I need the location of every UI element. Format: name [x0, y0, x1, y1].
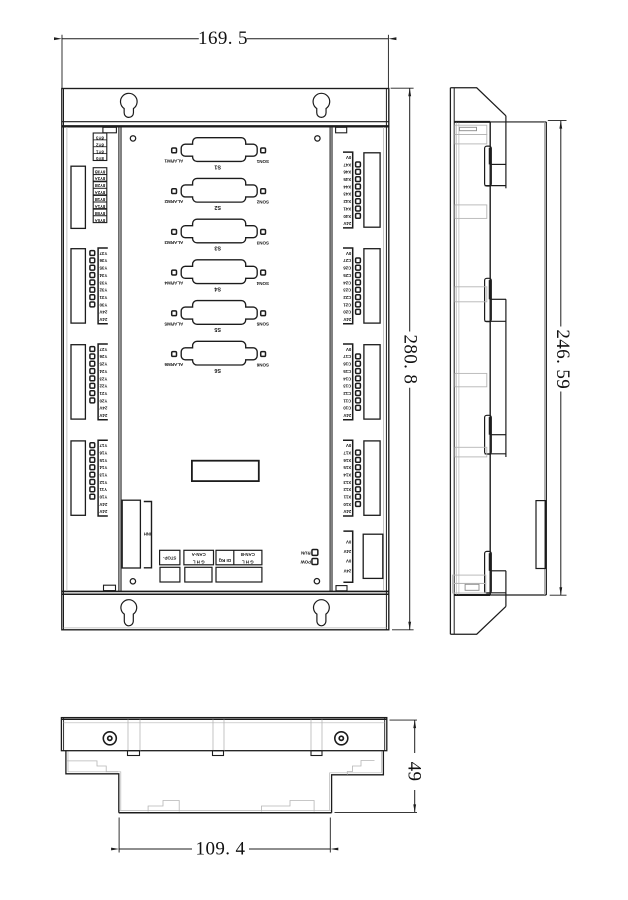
svg-text:ALARM6: ALARM6 — [164, 362, 183, 367]
svg-text:CAN-A: CAN-A — [191, 552, 206, 557]
svg-text:Y23: Y23 — [99, 376, 107, 381]
svg-text:C16: C16 — [343, 362, 352, 367]
svg-text:Y27: Y27 — [99, 347, 107, 352]
svg-text:Y11: Y11 — [99, 487, 107, 492]
svg-text:C22: C22 — [343, 295, 352, 300]
svg-text:X44: X44 — [343, 184, 351, 189]
svg-text:C13: C13 — [343, 384, 352, 389]
svg-text:8Y3A: 8Y3A — [95, 176, 105, 181]
svg-text:Y33: Y33 — [99, 280, 107, 285]
svg-text:X11: X11 — [343, 494, 351, 499]
svg-text:X10: X10 — [343, 502, 351, 507]
svg-text:Y26: Y26 — [99, 354, 107, 359]
svg-text:24V: 24V — [99, 502, 107, 507]
svg-text:X13: X13 — [343, 480, 351, 485]
svg-text:8Y0: 8Y0 — [96, 156, 104, 161]
svg-text:8Y1: 8Y1 — [96, 149, 104, 154]
svg-text:24V: 24V — [343, 509, 351, 514]
svg-text:24V: 24V — [99, 310, 107, 315]
svg-text:8Y3: 8Y3 — [96, 136, 104, 141]
svg-text:CAN-B: CAN-B — [241, 552, 255, 557]
svg-text:8Y0B: 8Y0B — [95, 211, 105, 216]
svg-text:DI RQ: DI RQ — [218, 558, 231, 563]
svg-text:ALARM2: ALARM2 — [164, 199, 183, 204]
svg-text:Y20: Y20 — [99, 398, 107, 403]
svg-text:Y30: Y30 — [99, 302, 107, 307]
svg-text:Y31: Y31 — [99, 295, 107, 300]
svg-text:SON2: SON2 — [256, 200, 269, 205]
svg-text:X40: X40 — [343, 214, 351, 219]
svg-text:C15: C15 — [343, 369, 352, 374]
svg-text:X14: X14 — [343, 472, 351, 477]
svg-text:C21: C21 — [343, 302, 352, 307]
svg-text:49: 49 — [403, 762, 424, 782]
svg-text:S1: S1 — [214, 163, 221, 169]
svg-text:8Y3B: 8Y3B — [95, 169, 105, 174]
svg-text:C24: C24 — [343, 280, 352, 285]
svg-text:C14: C14 — [343, 376, 352, 381]
svg-text:8Y2B: 8Y2B — [95, 183, 105, 188]
svg-text:8Y0A: 8Y0A — [95, 218, 105, 223]
svg-text:C12: C12 — [343, 391, 352, 396]
svg-text:C17: C17 — [343, 354, 352, 359]
svg-text:24V: 24V — [344, 568, 352, 573]
svg-text:0V: 0V — [346, 559, 351, 564]
svg-text:X12: X12 — [343, 487, 351, 492]
svg-text:POW: POW — [300, 559, 311, 564]
svg-text:169. 5: 169. 5 — [198, 28, 248, 49]
svg-text:X46: X46 — [343, 170, 351, 175]
svg-text:ALARM1: ALARM1 — [164, 158, 183, 163]
svg-text:G H L: G H L — [242, 559, 254, 564]
svg-text:Y34: Y34 — [99, 273, 107, 278]
svg-text:SON1: SON1 — [256, 159, 269, 164]
svg-text:C25: C25 — [343, 273, 352, 278]
svg-text:Y36: Y36 — [99, 258, 107, 263]
svg-text:S2: S2 — [214, 204, 221, 210]
svg-text:X17: X17 — [343, 450, 351, 455]
svg-text:STOP-: STOP- — [162, 556, 176, 561]
svg-text:Y15: Y15 — [99, 458, 107, 463]
svg-text:Y21: Y21 — [99, 391, 107, 396]
svg-text:C26: C26 — [343, 266, 352, 271]
svg-text:X15: X15 — [343, 465, 351, 470]
svg-text:X47: X47 — [343, 162, 351, 167]
svg-text:8Y1A: 8Y1A — [95, 204, 105, 209]
svg-text:0V: 0V — [346, 539, 351, 544]
svg-text:24V: 24V — [99, 406, 107, 411]
svg-text:S6: S6 — [214, 367, 221, 373]
svg-text:24V: 24V — [344, 549, 352, 554]
svg-text:Y35: Y35 — [99, 266, 107, 271]
svg-text:246. 59: 246. 59 — [552, 329, 573, 389]
svg-text:X41: X41 — [343, 206, 351, 211]
svg-text:Y17: Y17 — [99, 443, 107, 448]
svg-text:S3: S3 — [214, 245, 221, 251]
svg-text:Y12: Y12 — [99, 480, 107, 485]
svg-text:24V: 24V — [99, 413, 107, 418]
svg-text:G H L: G H L — [193, 559, 205, 564]
svg-text:ALARM5: ALARM5 — [164, 321, 183, 326]
svg-text:Y37: Y37 — [99, 251, 107, 256]
svg-text:X16: X16 — [343, 458, 351, 463]
svg-text:SON5: SON5 — [256, 322, 269, 327]
svg-text:8Y2A: 8Y2A — [95, 190, 105, 195]
svg-text:Y32: Y32 — [99, 288, 107, 293]
svg-text:X42: X42 — [343, 199, 351, 204]
svg-text:S5: S5 — [214, 326, 221, 332]
svg-text:24V: 24V — [343, 413, 351, 418]
svg-text:Y25: Y25 — [99, 362, 107, 367]
svg-text:0V: 0V — [346, 155, 351, 160]
svg-text:SON3: SON3 — [256, 240, 269, 245]
svg-text:Y10: Y10 — [99, 494, 107, 499]
svg-text:C20: C20 — [343, 310, 352, 315]
svg-text:Y16: Y16 — [99, 450, 107, 455]
svg-text:INH: INH — [144, 531, 151, 536]
svg-text:24V: 24V — [343, 317, 351, 322]
svg-text:SON4: SON4 — [256, 281, 269, 286]
svg-text:24V: 24V — [99, 317, 107, 322]
svg-text:C11: C11 — [343, 398, 351, 403]
svg-text:X45: X45 — [343, 177, 351, 182]
svg-text:109. 4: 109. 4 — [196, 838, 246, 859]
svg-text:ALARM3: ALARM3 — [164, 240, 183, 245]
svg-text:Y22: Y22 — [99, 384, 107, 389]
svg-text:24V: 24V — [99, 509, 107, 514]
svg-text:0V: 0V — [346, 443, 351, 448]
svg-text:C23: C23 — [343, 288, 352, 293]
svg-text:X43: X43 — [343, 192, 351, 197]
svg-text:8Y2: 8Y2 — [96, 142, 104, 147]
svg-text:C27: C27 — [343, 258, 352, 263]
svg-text:RUN: RUN — [301, 550, 311, 555]
svg-text:C10: C10 — [343, 406, 352, 411]
svg-text:Y14: Y14 — [99, 465, 107, 470]
svg-text:Y13: Y13 — [99, 472, 107, 477]
svg-text:Y24: Y24 — [99, 369, 107, 374]
svg-text:8Y1B: 8Y1B — [95, 197, 105, 202]
svg-text:S4: S4 — [214, 285, 221, 291]
svg-text:ALARM4: ALARM4 — [164, 281, 183, 286]
svg-text:SON6: SON6 — [256, 362, 269, 367]
svg-text:280. 8: 280. 8 — [400, 334, 421, 384]
svg-text:24V: 24V — [343, 221, 351, 226]
svg-text:0V: 0V — [346, 347, 351, 352]
svg-text:0V: 0V — [346, 251, 351, 256]
